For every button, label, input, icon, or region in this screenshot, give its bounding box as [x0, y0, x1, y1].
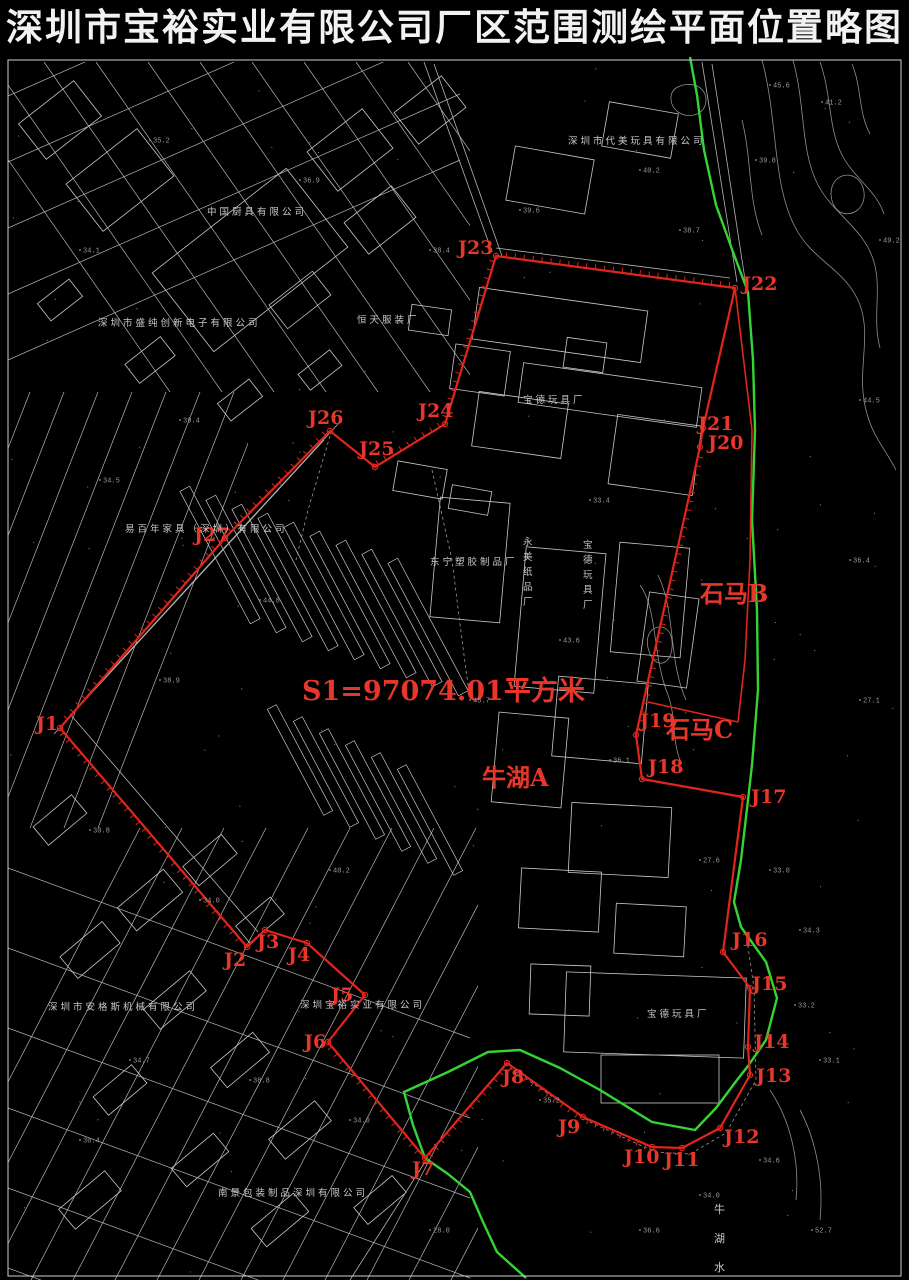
point-label-J10: J10	[622, 1146, 659, 1168]
svg-text:38.4: 38.4	[433, 248, 450, 256]
map-frame	[8, 60, 901, 1276]
point-label-J1: J1	[34, 713, 58, 735]
bg-grid-upper-left	[0, 0, 638, 392]
point-label-J12: J12	[722, 1126, 759, 1148]
svg-text:27.6: 27.6	[703, 858, 720, 866]
svg-text:36.9: 36.9	[303, 178, 320, 186]
point-label-J8: J8	[500, 1066, 524, 1088]
company-label-12: 南景包装制品深圳有限公司	[218, 1187, 368, 1199]
point-label-J6: J6	[302, 1031, 326, 1053]
svg-text:34.0: 34.0	[353, 1118, 370, 1126]
svg-text:34.0: 34.0	[203, 898, 220, 906]
svg-text:33.0: 33.0	[773, 868, 790, 876]
company-label-4: 易百年家具（深圳）有限公司	[125, 523, 288, 535]
svg-text:34.7: 34.7	[133, 1058, 150, 1066]
svg-text:33.2: 33.2	[798, 1003, 815, 1011]
point-label-J2: J2	[222, 949, 246, 971]
point-label-J9: J9	[556, 1116, 580, 1138]
svg-text:45.6: 45.6	[773, 83, 790, 91]
survey-map-page: 深圳市宝裕实业有限公司厂区范围测绘平面位置略图 J1J2J3J4J5J6J7J8…	[0, 0, 909, 1280]
company-label-7: 宝德玩具厂	[583, 539, 593, 611]
svg-text:52.7: 52.7	[815, 1228, 832, 1236]
svg-text:45.7: 45.7	[473, 698, 490, 706]
point-label-J25: J25	[357, 438, 394, 460]
region-label-2: 石马C	[665, 715, 733, 744]
svg-text:34.0: 34.0	[703, 1193, 720, 1201]
svg-text:牛: 牛	[714, 1202, 725, 1216]
svg-text:49.2: 49.2	[883, 238, 900, 246]
svg-text:36.4: 36.4	[853, 558, 870, 566]
bg-speckles	[10, 68, 893, 1273]
company-label-5: 东宁塑胶制品厂	[430, 556, 518, 568]
svg-text:水: 水	[714, 1261, 725, 1274]
svg-text:38.8: 38.8	[253, 1078, 270, 1086]
svg-text:34.5: 34.5	[103, 478, 120, 486]
point-label-J13: J13	[754, 1065, 791, 1087]
point-label-J3: J3	[255, 931, 279, 953]
company-label-3: 深圳市盛纯创新电子有限公司	[98, 317, 261, 329]
bg-buildings	[19, 76, 747, 1247]
company-label-6: 永美纸品厂	[523, 536, 533, 608]
svg-text:27.1: 27.1	[863, 698, 880, 706]
company-labels: 深圳市代美玩具有限公司中国厨具有限公司恒天服装厂深圳市盛纯创新电子有限公司易百年…	[48, 135, 710, 1199]
company-label-8: 宝德玩具厂	[523, 394, 586, 406]
point-label-J15: J15	[750, 973, 787, 995]
red-annotations: S1=97074.01平方米牛湖A石马B石马C	[302, 579, 768, 792]
svg-text:35.2: 35.2	[153, 138, 170, 146]
point-label-J11: J11	[662, 1149, 699, 1171]
point-label-J7: J7	[410, 1158, 434, 1180]
svg-text:30.8: 30.8	[93, 828, 110, 836]
svg-text:36.6: 36.6	[643, 1228, 660, 1236]
area-label: S1=97074.01平方米	[302, 675, 585, 707]
point-label-J23: J23	[456, 237, 493, 259]
svg-text:39.4: 39.4	[183, 418, 200, 426]
point-label-J17: J17	[749, 786, 786, 808]
point-label-J24: J24	[416, 400, 453, 422]
point-label-J21: J21	[696, 413, 733, 435]
company-label-0: 深圳市代美玩具有限公司	[568, 135, 706, 147]
boundary-vertices	[57, 253, 752, 1160]
svg-text:44.5: 44.5	[863, 398, 880, 406]
svg-text:28.0: 28.0	[433, 1228, 450, 1236]
point-label-J16: J16	[730, 929, 767, 951]
region-label-0: 牛湖A	[482, 763, 549, 792]
svg-text:34.1: 34.1	[83, 248, 100, 256]
bg-grid-lower-left	[0, 828, 686, 1280]
svg-text:38.9: 38.9	[163, 678, 180, 686]
svg-text:43.6: 43.6	[563, 638, 580, 646]
svg-text:35.2: 35.2	[543, 1098, 560, 1106]
svg-text:30.4: 30.4	[83, 1138, 100, 1146]
company-label-11: 深圳市安格斯机械有限公司	[48, 1001, 198, 1013]
svg-text:34.6: 34.6	[763, 1158, 780, 1166]
svg-text:34.3: 34.3	[803, 928, 820, 936]
svg-text:40.2: 40.2	[643, 168, 660, 176]
svg-text:33.4: 33.4	[593, 498, 610, 506]
svg-text:44.8: 44.8	[263, 598, 280, 606]
point-label-J14: J14	[752, 1031, 789, 1053]
map-frame-group	[8, 60, 901, 1276]
svg-text:41.2: 41.2	[825, 100, 842, 108]
svg-text:38.7: 38.7	[683, 228, 700, 236]
point-label-J26: J26	[306, 407, 343, 429]
svg-text:39.8: 39.8	[759, 158, 776, 166]
svg-text:40.2: 40.2	[333, 868, 350, 876]
company-label-10: 深圳宝裕实业有限公司	[300, 999, 425, 1011]
survey-map-canvas: J1J2J3J4J5J6J7J8J9J10J11J12J13J14J15J16J…	[0, 0, 909, 1280]
bg-grid-mid-left	[0, 392, 268, 828]
company-label-1: 中国厨具有限公司	[207, 206, 307, 218]
svg-text:36.1: 36.1	[613, 758, 630, 766]
svg-text:33.1: 33.1	[823, 1058, 840, 1066]
company-label-2: 恒天服装厂	[357, 314, 420, 326]
region-label-1: 石马B	[699, 579, 768, 608]
water-label: 牛湖水	[714, 1202, 725, 1274]
point-label-J4: J4	[286, 944, 310, 966]
point-label-J18: J18	[646, 756, 683, 778]
point-label-J22: J22	[740, 273, 777, 295]
svg-text:39.6: 39.6	[523, 208, 540, 216]
svg-text:湖: 湖	[714, 1232, 725, 1245]
point-label-J20: J20	[706, 432, 743, 454]
company-label-9: 宝德玩具厂	[647, 1008, 710, 1020]
